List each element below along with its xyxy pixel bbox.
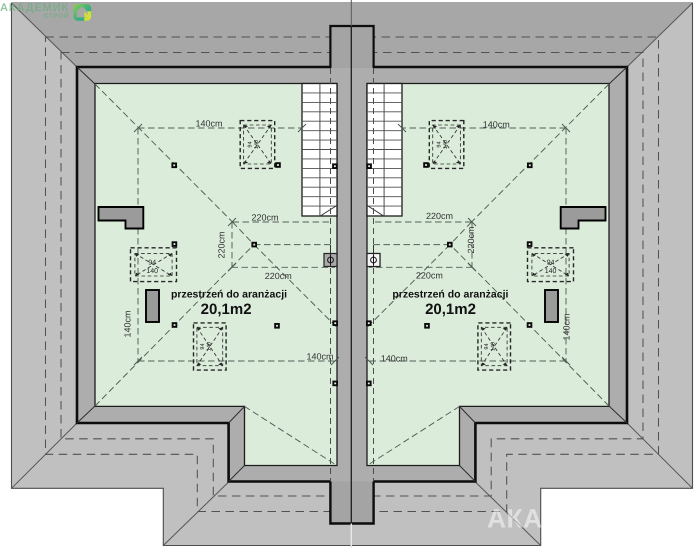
svg-text:94: 94 [148,260,156,267]
svg-text:94: 94 [437,141,443,147]
svg-text:220cm: 220cm [265,271,292,281]
svg-text:220cm: 220cm [466,226,476,253]
svg-text:94: 94 [247,141,253,147]
svg-text:140cm: 140cm [123,310,133,337]
svg-text:94: 94 [484,343,490,349]
svg-text:220cm: 220cm [251,213,278,223]
svg-text:140cm: 140cm [562,313,572,340]
svg-text:140: 140 [206,342,212,351]
svg-text:220cm: 220cm [416,271,443,281]
svg-text:20,1m2: 20,1m2 [201,301,252,318]
svg-text:przestrzeń do aranżacji: przestrzeń do aranżacji [392,288,508,300]
svg-text:140cm: 140cm [381,354,408,364]
svg-text:СТРОЙ: СТРОЙ [44,12,69,20]
svg-text:220cm: 220cm [217,231,227,258]
svg-text:140: 140 [545,268,557,275]
svg-text:20,1m2: 20,1m2 [425,301,476,318]
svg-text:przestrzeń do aranżacji: przestrzeń do aranżacji [171,288,287,300]
svg-text:140: 140 [146,268,158,275]
svg-text:94: 94 [547,260,555,267]
svg-text:140cm: 140cm [483,120,510,130]
svg-text:140: 140 [443,140,449,149]
svg-text:140: 140 [254,140,260,149]
svg-text:220cm: 220cm [426,211,453,221]
svg-text:АКАДЕМИК: АКАДЕМИК [487,504,640,534]
svg-text:140: 140 [491,342,497,351]
svg-text:140cm: 140cm [195,118,222,128]
svg-text:140cm: 140cm [306,351,333,361]
svg-text:94: 94 [200,343,206,349]
